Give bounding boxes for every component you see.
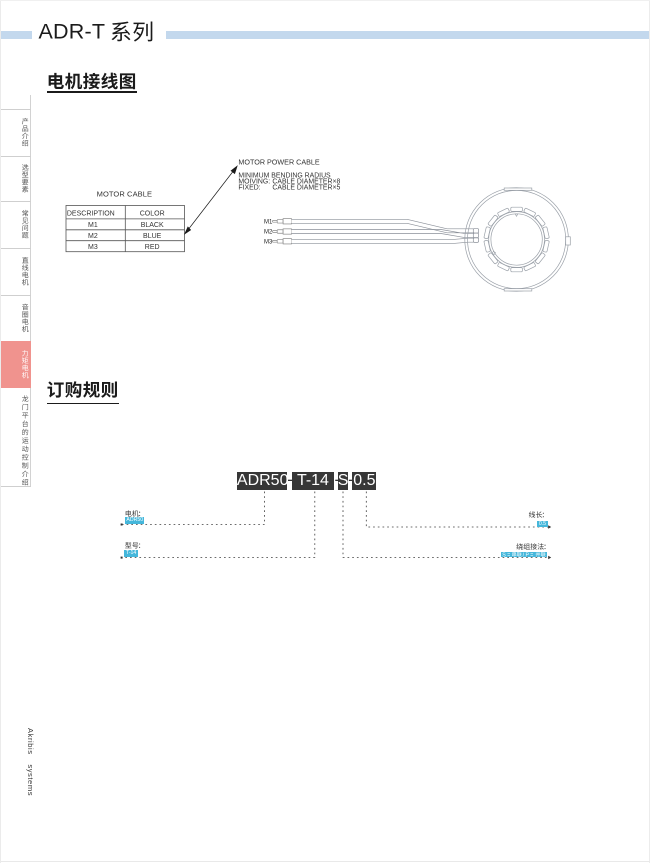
svg-text:/ P =: / P = (523, 553, 534, 559)
svg-text:S =: S = (502, 553, 510, 559)
